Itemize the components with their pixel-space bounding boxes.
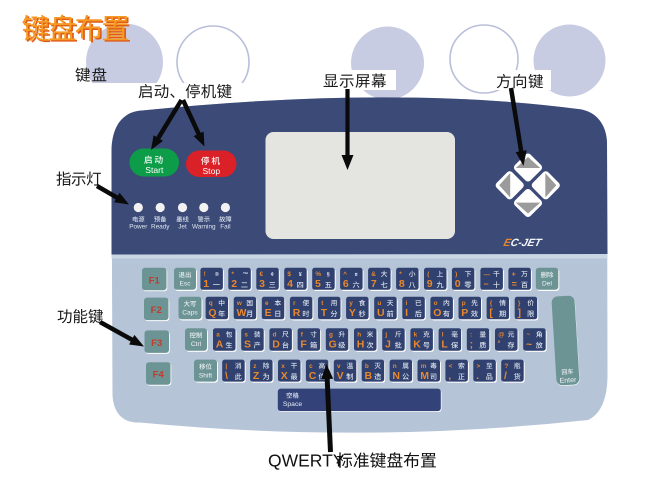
svg-text:§: §: [327, 272, 330, 278]
svg-text:4: 4: [287, 278, 293, 290]
svg-text:a: a: [216, 331, 220, 338]
svg-text:h: h: [357, 331, 361, 338]
svg-text:Shift: Shift: [199, 372, 212, 379]
svg-text:=: =: [512, 279, 517, 289]
svg-text:Stop: Stop: [202, 166, 220, 176]
svg-text:@: @: [498, 331, 504, 338]
svg-text:): ): [455, 271, 457, 278]
svg-text:®: ®: [215, 271, 219, 278]
svg-text:k: k: [414, 331, 418, 338]
svg-text:B: B: [365, 370, 373, 382]
svg-text:R: R: [293, 307, 301, 319]
svg-text:1: 1: [203, 278, 209, 290]
svg-text:6: 6: [343, 278, 349, 290]
svg-text:¢: ¢: [271, 272, 274, 278]
svg-text:O: O: [433, 307, 441, 319]
svg-text:g: g: [329, 331, 333, 338]
svg-text:c: c: [309, 363, 313, 370]
svg-text:Ready: Ready: [151, 224, 170, 231]
svg-text:^: ^: [343, 270, 347, 278]
svg-text:u: u: [377, 300, 381, 307]
svg-text:D: D: [272, 338, 280, 350]
svg-text:Jet: Jet: [178, 224, 187, 231]
svg-text:+: +: [512, 271, 516, 278]
svg-text:I: I: [405, 307, 408, 319]
svg-text:~: ~: [526, 338, 532, 350]
svg-text:w: w: [236, 300, 242, 307]
svg-text:b: b: [365, 363, 369, 370]
svg-text:l: l: [442, 331, 444, 338]
svg-text:¥: ¥: [299, 272, 302, 278]
svg-text:W: W: [237, 307, 247, 319]
svg-text:H: H: [357, 338, 365, 350]
svg-text:Y: Y: [349, 307, 356, 319]
svg-text:e: e: [265, 300, 269, 307]
svg-text:]: ]: [518, 307, 522, 319]
svg-text:9: 9: [427, 278, 433, 290]
svg-text:i: i: [406, 300, 408, 307]
svg-text:V: V: [337, 370, 344, 382]
svg-text:—: —: [484, 271, 491, 278]
svg-text:Caps: Caps: [182, 310, 198, 317]
svg-text:0: 0: [455, 278, 461, 290]
svg-text:G: G: [329, 338, 337, 350]
svg-text:F4: F4: [153, 370, 165, 381]
svg-text:~: ~: [526, 331, 530, 338]
svg-text:x: x: [281, 363, 285, 370]
svg-text:C: C: [309, 370, 317, 382]
svg-text:QWERTY: QWERTY: [268, 451, 345, 471]
svg-text:z: z: [253, 363, 256, 370]
svg-text:,: ,: [448, 370, 451, 382]
svg-text:E: E: [265, 307, 272, 319]
svg-text:F3: F3: [151, 338, 162, 349]
svg-text:J: J: [385, 338, 391, 350]
svg-text:%: %: [315, 271, 321, 278]
svg-text:q: q: [209, 300, 213, 307]
svg-text:Del: Del: [542, 281, 552, 288]
svg-text:7: 7: [371, 278, 377, 290]
svg-text:!: !: [204, 271, 206, 278]
svg-text:p: p: [462, 300, 466, 307]
svg-text:A: A: [216, 338, 224, 350]
svg-text:Fail: Fail: [220, 224, 230, 231]
svg-text:d: d: [273, 331, 277, 338]
svg-text:Start: Start: [145, 165, 164, 175]
svg-text:3: 3: [259, 278, 265, 290]
svg-text:.: .: [476, 370, 479, 382]
svg-text:Enter: Enter: [559, 377, 577, 385]
svg-text:<: <: [449, 363, 453, 370]
svg-text:v: v: [337, 363, 341, 370]
svg-text:N: N: [392, 370, 400, 382]
svg-text:m: m: [421, 363, 427, 370]
svg-text:>: >: [477, 363, 481, 370]
svg-text:X: X: [281, 370, 288, 382]
svg-text:n: n: [393, 363, 397, 370]
svg-text:¤: ¤: [355, 272, 358, 278]
svg-text:S: S: [244, 338, 251, 350]
svg-text:5: 5: [315, 278, 321, 290]
svg-text:C-JET: C-JET: [509, 237, 544, 249]
svg-text:': ': [498, 338, 501, 350]
svg-text:j: j: [384, 331, 387, 338]
svg-text:/: /: [504, 370, 507, 382]
svg-text:\: \: [225, 370, 228, 382]
svg-text:–: –: [484, 278, 489, 288]
svg-text:Esc: Esc: [180, 281, 192, 288]
svg-text:F1: F1: [149, 275, 161, 286]
svg-text:s: s: [244, 331, 248, 338]
svg-text:F2: F2: [151, 305, 162, 316]
svg-text:[: [: [489, 307, 493, 319]
svg-text::: :: [470, 331, 472, 338]
svg-text:™: ™: [243, 272, 248, 278]
svg-text:M: M: [420, 370, 429, 382]
svg-text:2: 2: [231, 278, 237, 290]
svg-text:?: ?: [504, 363, 508, 370]
svg-text:|: |: [225, 363, 227, 370]
svg-text:Z: Z: [253, 370, 260, 382]
svg-text:Space: Space: [283, 401, 302, 408]
svg-text:;: ;: [470, 338, 474, 350]
svg-text:Ctrl: Ctrl: [191, 341, 202, 348]
svg-text:U: U: [377, 307, 385, 319]
svg-text:&: &: [371, 271, 376, 278]
svg-text:L: L: [441, 338, 448, 350]
svg-text:y: y: [349, 300, 353, 307]
svg-text:F: F: [300, 338, 307, 350]
svg-text:Warning: Warning: [192, 224, 216, 231]
svg-text:8: 8: [399, 278, 405, 290]
svg-text:o: o: [434, 300, 438, 307]
svg-text:P: P: [461, 307, 468, 319]
svg-text:T: T: [321, 307, 328, 319]
svg-text:€: €: [260, 271, 264, 278]
svg-text:Q: Q: [208, 307, 216, 319]
svg-text:$: $: [287, 271, 291, 278]
svg-text:Power: Power: [129, 224, 148, 231]
svg-text:K: K: [413, 338, 421, 350]
